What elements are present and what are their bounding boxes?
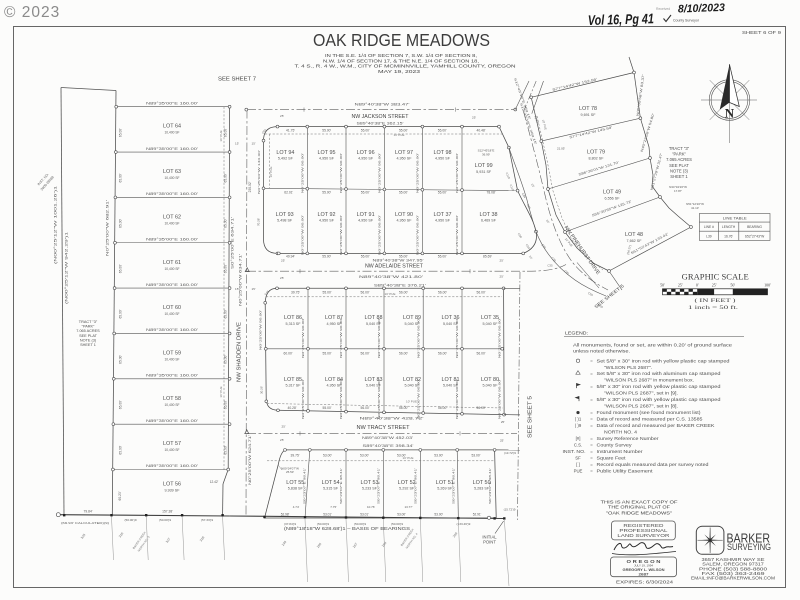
svg-text:LINE #: LINE #	[704, 225, 714, 229]
svg-text:53.00': 53.00'	[397, 453, 406, 457]
svg-text:157.38': 157.38'	[162, 510, 173, 514]
svg-text:NW JACKSON STREET: NW JACKSON STREET	[352, 114, 410, 120]
svg-text:53.01': 53.01'	[360, 512, 369, 516]
svg-text:56.00': 56.00'	[361, 406, 370, 410]
svg-text:4,950 SF: 4,950 SF	[319, 157, 334, 161]
svg-text:OAK RIDGE MEADOWS: OAK RIDGE MEADOWS	[313, 30, 490, 50]
svg-text:Square Feet: Square Feet	[597, 455, 627, 460]
svg-text:7.065 ACRES: 7.065 ACRES	[76, 329, 100, 333]
svg-text:GRAPHIC SCALE: GRAPHIC SCALE	[682, 272, 749, 281]
svg-text:LOT 54: LOT 54	[322, 480, 340, 486]
svg-text:10' PUE: 10' PUE	[219, 130, 223, 141]
svg-text:"WILSON PLS 2687", set in [9].: "WILSON PLS 2687", set in [9].	[604, 391, 678, 396]
svg-text:10' PUE: 10' PUE	[406, 399, 417, 403]
svg-text:56.00': 56.00'	[399, 352, 408, 356]
svg-text:( IN FEET ): ( IN FEET )	[695, 299, 737, 304]
svg-text:L39: L39	[706, 234, 712, 238]
svg-text:N0°25'00"W 90.00': N0°25'00"W 90.00'	[377, 317, 381, 358]
svg-text:THE ORIGINAL PLAT OF: THE ORIGINAL PLAT OF	[608, 505, 670, 510]
svg-text:10,400 SF: 10,400 SF	[165, 131, 180, 135]
svg-text:5/8" x 30" iron rod with yello: 5/8" x 30" iron rod with yellow plastic …	[597, 384, 722, 389]
svg-text:56.00': 56.00'	[399, 290, 408, 294]
svg-text:4,950 SF: 4,950 SF	[435, 157, 450, 161]
svg-text:N89°40'38"W 428.72': N89°40'38"W 428.72'	[360, 417, 425, 421]
svg-text:65.00': 65.00'	[119, 355, 123, 364]
svg-text:7.065 ACRES: 7.065 ACRES	[666, 157, 692, 162]
svg-text:41.13': 41.13'	[691, 206, 700, 210]
svg-text:8/10/2023: 8/10/2023	[678, 2, 725, 16]
svg-text:Public Utility Easement: Public Utility Easement	[597, 468, 654, 473]
svg-text:17.87': 17.87'	[674, 189, 683, 193]
svg-text:N: N	[725, 106, 735, 121]
svg-text:NOTE (3): NOTE (3)	[670, 168, 689, 173]
svg-text:LOT 90: LOT 90	[395, 212, 413, 218]
svg-text:Set 5/8" x 30" iron rod with a: Set 5/8" x 30" iron rod with aluminum ca…	[597, 371, 722, 376]
svg-text:56.00': 56.00'	[477, 290, 486, 294]
svg-text:5,292 SF: 5,292 SF	[399, 487, 414, 491]
svg-text:N89°40'38"W 421.80': N89°40'38"W 421.80'	[359, 275, 424, 279]
svg-text:4.74': 4.74'	[293, 505, 300, 509]
svg-text:70.28': 70.28'	[257, 218, 261, 227]
svg-text:LOT 64: LOT 64	[163, 124, 181, 130]
svg-text:16.76': 16.76'	[724, 234, 733, 238]
svg-text:LOT 62: LOT 62	[163, 214, 181, 220]
svg-text:12.42': 12.42'	[210, 480, 219, 484]
svg-text:65.00': 65.00'	[119, 400, 123, 409]
svg-text:LENGTH: LENGTH	[722, 225, 736, 229]
svg-text:(50.00')9: (50.00')9	[354, 522, 366, 526]
svg-text:LOT 38: LOT 38	[480, 212, 498, 218]
svg-text:N0°25'00"W 90.00': N0°25'00"W 90.00'	[339, 378, 343, 419]
svg-text:N0°25'00"W 90.00': N0°25'00"W 90.00'	[301, 317, 305, 358]
svg-text:10' PUE: 10' PUE	[219, 386, 223, 397]
svg-text:LOT 48: LOT 48	[625, 232, 643, 238]
svg-text:S0°23'07"E 98.41': S0°23'07"E 98.41'	[414, 467, 418, 504]
svg-text:[#]: [#]	[576, 436, 581, 441]
svg-text:100': 100'	[764, 282, 771, 287]
svg-text:SF: SF	[575, 455, 581, 460]
svg-text:5,498 SF: 5,498 SF	[277, 219, 292, 223]
svg-text:SHEET 1: SHEET 1	[80, 343, 96, 347]
svg-text:Record equals measured data pe: Record equals measured data per survey n…	[597, 462, 710, 467]
svg-text:10,400 SF: 10,400 SF	[165, 357, 180, 361]
svg-text:56.00': 56.00'	[361, 352, 370, 356]
svg-text:(50.00')9: (50.00')9	[391, 522, 403, 526]
svg-text:LOT 91: LOT 91	[357, 212, 375, 218]
svg-text:N0°25'00"W 90.00': N0°25'00"W 90.00'	[301, 152, 305, 193]
svg-text:N0°25'00"W 90.00': N0°25'00"W 90.00'	[301, 214, 305, 255]
svg-text:(69.93' CALCULATED)(9): (69.93' CALCULATED)(9)	[61, 521, 109, 525]
svg-text:39.75': 39.75'	[291, 290, 300, 294]
svg-text:S0°23'07"E 98.41': S0°23'07"E 98.41'	[488, 467, 492, 504]
svg-text:"PARK": "PARK"	[82, 325, 95, 329]
svg-text:LOT 61: LOT 61	[163, 260, 181, 266]
svg-text:(N00°25'12"W 1001.26')1: (N00°25'12"W 1001.26')1	[54, 186, 58, 264]
svg-text:N0°25'00"W 90.00': N0°25'00"W 90.00'	[416, 317, 420, 358]
svg-text:5,040 SF: 5,040 SF	[483, 384, 498, 388]
svg-text:© 2023: © 2023	[4, 4, 60, 21]
svg-text:60.00': 60.00'	[284, 352, 293, 356]
svg-text:N0°25'00"W 90.00': N0°25'00"W 90.00'	[339, 214, 343, 255]
svg-text:25': 25'	[501, 420, 505, 424]
svg-text:N0°25'00"W 90.00': N0°25'00"W 90.00'	[301, 378, 305, 419]
svg-text:N89°35'00"E 160.00': N89°35'00"E 160.00'	[146, 283, 199, 287]
svg-text:55.00': 55.00'	[438, 255, 447, 259]
svg-text:9,939 SF: 9,939 SF	[165, 489, 180, 493]
svg-text:25': 25'	[282, 425, 286, 429]
svg-text:10,400 SF: 10,400 SF	[165, 448, 180, 452]
svg-text:"WILSON PLS 2687" in monument: "WILSON PLS 2687" in monument box.	[604, 378, 694, 383]
svg-text:49.94': 49.94'	[286, 255, 295, 259]
svg-text:N0°25'00"W 90.00': N0°25'00"W 90.00'	[455, 214, 459, 255]
svg-text:55.00': 55.00'	[399, 129, 408, 133]
svg-text:LEGEND:: LEGEND:	[565, 331, 588, 336]
svg-text:10' PUE: 10' PUE	[269, 167, 273, 178]
svg-text:JULY 19, 1994: JULY 19, 1994	[634, 564, 654, 568]
svg-text:65.00': 65.00'	[119, 173, 123, 182]
svg-text:55.00': 55.00'	[399, 255, 408, 259]
svg-text:56.00': 56.00'	[361, 290, 370, 294]
svg-text:5,838 SF: 5,838 SF	[288, 487, 303, 491]
svg-text:SURVEYING: SURVEYING	[727, 542, 771, 553]
svg-text:LOT 60: LOT 60	[163, 305, 181, 311]
svg-text:5,269 SF: 5,269 SF	[437, 487, 452, 491]
svg-text:2687: 2687	[639, 572, 649, 576]
svg-text:50': 50'	[660, 282, 665, 287]
svg-text:TRACT "3": TRACT "3"	[669, 146, 690, 151]
svg-text:15': 15'	[252, 142, 256, 146]
svg-text:5,233 SF: 5,233 SF	[362, 487, 377, 491]
svg-text:(50.00')9: (50.00')9	[317, 522, 329, 526]
svg-text:S89°40'38"E 398.34': S89°40'38"E 398.34'	[363, 444, 415, 448]
svg-text:7.75': 7.75'	[330, 505, 337, 509]
svg-text:TRACT "3": TRACT "3"	[79, 320, 98, 324]
svg-text:55.00': 55.00'	[323, 352, 332, 356]
svg-text:55.00': 55.00'	[361, 129, 370, 133]
svg-text:7,662 SF: 7,662 SF	[627, 239, 642, 243]
svg-text:1 inch = 50 ft.: 1 inch = 50 ft.	[688, 304, 738, 311]
svg-text:S0°23'07"E 98.41': S0°23'07"E 98.41'	[377, 467, 381, 504]
svg-text:(13.72')9: (13.72')9	[504, 451, 516, 455]
svg-text:6,556 SF: 6,556 SF	[605, 197, 620, 201]
svg-text:13.77': 13.77'	[404, 505, 413, 509]
svg-text:N0°25'00"W 90.00': N0°25'00"W 90.00'	[259, 309, 263, 350]
svg-text:LOT 99: LOT 99	[475, 163, 493, 169]
svg-text:56.00': 56.00'	[438, 352, 447, 356]
svg-text:10.76': 10.76'	[367, 505, 376, 509]
svg-text:25': 25'	[500, 259, 504, 263]
svg-text:N89°40'38"W 452.03': N89°40'38"W 452.03'	[362, 436, 414, 440]
svg-text:(50.00')9: (50.00')9	[124, 518, 136, 522]
svg-text:65.00': 65.00'	[119, 219, 123, 228]
svg-text:NORTH NO. 4: NORTH NO. 4	[604, 429, 638, 434]
svg-text:O R E G O N: O R E G O N	[627, 559, 661, 564]
svg-text:Data of record and measured pe: Data of record and measured per BAKER CR…	[597, 423, 715, 428]
svg-text:5,492 SF: 5,492 SF	[278, 157, 293, 161]
svg-text:53.00': 53.00'	[434, 453, 443, 457]
svg-text:55.00': 55.00'	[322, 191, 331, 195]
svg-text:LOT 58: LOT 58	[163, 396, 181, 402]
svg-text:SEE PLAT: SEE PLAT	[79, 334, 98, 338]
svg-text:C.S.: C.S.	[574, 442, 582, 447]
svg-text:County Survey: County Survey	[597, 442, 633, 447]
svg-text:62.01': 62.01'	[284, 191, 293, 195]
svg-text:230.02': 230.02'	[248, 181, 252, 192]
svg-text:N89°35'00"E 160.00': N89°35'00"E 160.00'	[146, 328, 199, 332]
svg-text:N0°25'00"W 90.00': N0°25'00"W 90.00'	[339, 152, 343, 193]
svg-text:56.00': 56.00'	[399, 406, 408, 410]
svg-text:EXPIRES: 6/30/2024: EXPIRES: 6/30/2024	[616, 579, 674, 584]
svg-text:LOT 97: LOT 97	[395, 150, 413, 156]
svg-text:79.84': 79.84'	[84, 509, 93, 513]
svg-text:N89°35'00"E 160.00': N89°35'00"E 160.00'	[146, 374, 199, 378]
svg-text:LOT 96: LOT 96	[357, 150, 375, 156]
svg-text:NOTE (3): NOTE (3)	[80, 338, 97, 342]
svg-text:LOT 98: LOT 98	[434, 150, 452, 156]
svg-text:N89°35'00"E 160.00': N89°35'00"E 160.00'	[146, 237, 199, 241]
svg-text:55.00': 55.00'	[438, 129, 447, 133]
svg-text:5,317 SF: 5,317 SF	[286, 384, 301, 388]
svg-text:55.00': 55.00'	[438, 191, 447, 195]
svg-text:SHEET 1: SHEET 1	[670, 174, 688, 179]
svg-text:"WILSON PLS 2687", set in [8].: "WILSON PLS 2687", set in [8].	[604, 404, 678, 409]
svg-text:EMAIL:INFO@BARKERWILSON.COM: EMAIL:INFO@BARKERWILSON.COM	[691, 576, 775, 581]
svg-text:56.00': 56.00'	[438, 290, 447, 294]
svg-text:SHEET 6 OF 9: SHEET 6 OF 9	[742, 30, 782, 35]
svg-text:BEARING: BEARING	[747, 225, 762, 229]
svg-text:S89°40'38"E 376.21': S89°40'38"E 376.21'	[374, 284, 427, 288]
svg-text:LOT 92: LOT 92	[318, 212, 336, 218]
svg-text:Received: Received	[656, 7, 670, 11]
svg-text:N0°25'00"W 90.00': N0°25'00"W 90.00'	[378, 214, 382, 255]
svg-text:N0°25'00"W 90.00': N0°25'00"W 90.00'	[455, 317, 459, 358]
svg-text:0': 0'	[696, 282, 699, 287]
svg-text:15': 15'	[235, 287, 239, 291]
svg-text:25': 25'	[472, 116, 476, 120]
svg-text:53.00': 53.00'	[434, 512, 443, 516]
svg-text:53.00': 53.00'	[360, 453, 369, 457]
svg-text:25': 25'	[281, 259, 285, 263]
svg-text:65.00': 65.00'	[119, 309, 123, 318]
svg-text:N0°25'00"W 90.00': N0°25'00"W 90.00'	[416, 214, 420, 255]
svg-text:S52°27'43"W: S52°27'43"W	[745, 234, 765, 238]
svg-text:N0°25'00"W 90.00': N0°25'00"W 90.00'	[455, 378, 459, 419]
svg-text:(37.84')9: (37.84')9	[284, 522, 296, 526]
svg-text:52.91': 52.91'	[473, 512, 482, 516]
svg-text:15': 15'	[252, 287, 256, 291]
svg-text:unless noted otherwise.: unless noted otherwise.	[573, 348, 630, 353]
svg-text:55.00': 55.00'	[399, 191, 408, 195]
svg-text:65.00': 65.00'	[119, 128, 123, 137]
svg-text:10,400 SF: 10,400 SF	[165, 176, 180, 180]
svg-text:(15.72')9: (15.72')9	[504, 508, 516, 512]
svg-text:9,691 SF: 9,691 SF	[581, 113, 596, 117]
svg-text:( )9: ( )9	[575, 423, 582, 428]
svg-text:SEE SHEET 5: SEE SHEET 5	[528, 396, 534, 438]
svg-text:S89°40'38"E 362.15': S89°40'38"E 362.15'	[357, 121, 405, 125]
svg-text:65.00': 65.00'	[223, 128, 227, 137]
svg-text:N0°25'00"W 682.91': N0°25'00"W 682.91'	[106, 199, 110, 256]
svg-text:5,313 SF: 5,313 SF	[286, 322, 301, 326]
svg-text:SEE PLAT: SEE PLAT	[669, 163, 689, 168]
svg-text:4,950 SF: 4,950 SF	[397, 219, 412, 223]
svg-text:25': 25'	[500, 439, 504, 443]
svg-text:Found monument (see found monu: Found monument (see found monument list)	[597, 410, 702, 415]
svg-text:65.00': 65.00'	[119, 445, 123, 454]
svg-text:N0°25'00"W 624.71': N0°25'00"W 624.71'	[248, 434, 252, 485]
svg-text:S0°23'07"E 98.41': S0°23'07"E 98.41'	[339, 467, 343, 504]
svg-text:N89°35'00"E 160.00': N89°35'00"E 160.00'	[146, 147, 199, 151]
svg-text:"PARK": "PARK"	[672, 152, 687, 157]
svg-text:N0°25'00"W 90.00': N0°25'00"W 90.00'	[416, 152, 420, 193]
svg-text:LOT 79: LOT 79	[587, 150, 605, 156]
svg-text:N89°35'00"E 160.00': N89°35'00"E 160.00'	[146, 419, 199, 423]
svg-text:N89°35'00"E 160.00': N89°35'00"E 160.00'	[146, 192, 199, 196]
svg-text:LOT 56: LOT 56	[163, 482, 181, 488]
svg-text:SEE SHEET 7: SEE SHEET 7	[218, 77, 256, 83]
svg-text:65.00': 65.00'	[119, 264, 123, 273]
svg-text:78.08': 78.08'	[487, 191, 496, 195]
svg-text:39.75': 39.75'	[291, 453, 300, 457]
svg-text:N0°25'00"W 90.00': N0°25'00"W 90.00'	[455, 152, 459, 193]
svg-text:25.53': 25.53'	[286, 470, 295, 474]
svg-text:POINT: POINT	[483, 539, 496, 544]
svg-text:85.69': 85.69'	[483, 255, 492, 259]
svg-text:LOT 57: LOT 57	[163, 441, 181, 447]
svg-text:52.98': 52.98'	[281, 512, 290, 516]
svg-text:S0°25'00"E 634.71': S0°25'00"E 634.71'	[231, 216, 235, 269]
svg-text:55.00': 55.00'	[361, 255, 370, 259]
svg-text:5,931 SF: 5,931 SF	[476, 170, 491, 174]
svg-text:N0°25'00"W 90.00': N0°25'00"W 90.00'	[339, 317, 343, 358]
svg-text:10' PUE: 10' PUE	[385, 292, 396, 296]
svg-text:LOT 37: LOT 37	[434, 212, 452, 218]
svg-text:GREGORY L. WILSON: GREGORY L. WILSON	[623, 568, 665, 572]
svg-text:10,400 SF: 10,400 SF	[165, 312, 180, 316]
svg-text:LOT 85: LOT 85	[284, 377, 302, 383]
svg-text:4,950 SF: 4,950 SF	[358, 157, 373, 161]
svg-text:5,315 SF: 5,315 SF	[323, 487, 338, 491]
svg-text:N.W. 1/4 OF SECTION 17, & THE: N.W. 1/4 OF SECTION 17, & THE N.E. 1/4 O…	[323, 58, 479, 63]
svg-text:County Surveyor: County Surveyor	[673, 19, 700, 23]
svg-text:55.00': 55.00'	[322, 129, 331, 133]
svg-text:Survey Reference Number: Survey Reference Number	[597, 436, 660, 441]
svg-text:LOT 93: LOT 93	[276, 212, 294, 218]
svg-text:55.00': 55.00'	[323, 290, 332, 294]
svg-text:55.00': 55.00'	[361, 191, 370, 195]
svg-text:LOT 95: LOT 95	[318, 150, 336, 156]
svg-text:40.28': 40.28'	[288, 406, 297, 410]
svg-text:N89°40'38"W 383.47': N89°40'38"W 383.47'	[355, 103, 411, 107]
svg-text:15': 15'	[235, 142, 239, 146]
svg-text:10,400 SF: 10,400 SF	[165, 403, 180, 407]
svg-text:N0°25'00"W 90.00': N0°25'00"W 90.00'	[378, 152, 382, 193]
svg-text:Vol 16, Pg 41: Vol 16, Pg 41	[588, 10, 655, 28]
svg-text:LOT 49: LOT 49	[603, 190, 621, 196]
svg-text:8,802 SF: 8,802 SF	[589, 157, 604, 161]
svg-text:( )1: ( )1	[575, 417, 582, 422]
svg-text:N0°25'00"W 90.00': N0°25'00"W 90.00'	[497, 317, 501, 358]
svg-text:T. 4 S., R. 4 W., W.M., CITY O: T. 4 S., R. 4 W., W.M., CITY OF MCMINNVI…	[295, 64, 516, 69]
svg-text:53.00': 53.00'	[397, 512, 406, 516]
svg-text:56.00': 56.00'	[477, 352, 486, 356]
svg-text:25': 25'	[500, 275, 504, 279]
svg-text:N89°35'00"E 160.00': N89°35'00"E 160.00'	[146, 101, 199, 105]
svg-text:NW TRACY STREET: NW TRACY STREET	[357, 425, 411, 431]
svg-text:65.00': 65.00'	[223, 173, 227, 182]
svg-text:NW ADELAIDE STREET: NW ADELAIDE STREET	[365, 264, 424, 270]
svg-text:S0°23'07"E 98.41': S0°23'07"E 98.41'	[303, 467, 307, 504]
svg-text:56.00': 56.00'	[477, 406, 486, 410]
svg-text:53.01': 53.01'	[323, 512, 332, 516]
svg-text:Data of record and measured pe: Data of record and measured per C.S. 135…	[597, 417, 704, 422]
svg-text:10,400 SF: 10,400 SF	[165, 267, 180, 271]
svg-text:(N89°18'18"W 628.68')1 – BAS: (N89°18'18"W 628.68')1 – BASIS OF BEARIN…	[284, 526, 410, 531]
svg-text:40.48': 40.48'	[477, 129, 486, 133]
svg-text:55.00': 55.00'	[323, 406, 332, 410]
svg-text:PUE: PUE	[574, 468, 583, 473]
svg-text:25': 25'	[712, 282, 717, 287]
svg-text:(57.33')9: (57.33')9	[201, 518, 213, 522]
svg-text:LOT 63: LOT 63	[163, 169, 181, 175]
svg-text:N0°25'00"W 140.00': N0°25'00"W 140.00'	[257, 149, 261, 194]
svg-text:INST. NO.: INST. NO.	[563, 449, 586, 454]
svg-text:25': 25'	[678, 282, 683, 287]
svg-text:53.00': 53.00'	[471, 453, 480, 457]
svg-text:Instrument Number: Instrument Number	[597, 449, 644, 454]
svg-text:"WILSON PLS 2687".: "WILSON PLS 2687".	[604, 365, 652, 370]
svg-text:"OAK RIDGE MEADOWS": "OAK RIDGE MEADOWS"	[606, 510, 673, 515]
svg-text:60.23': 60.23'	[118, 491, 122, 500]
svg-text:4,950 SF: 4,950 SF	[358, 219, 373, 223]
svg-text:N89°40'38"W 347.95': N89°40'38"W 347.95'	[373, 258, 425, 262]
svg-text:Set 5/8" x 30" iron rod with y: Set 5/8" x 30" iron rod with yellow plas…	[597, 358, 731, 363]
svg-text:10,400 SF: 10,400 SF	[165, 221, 180, 225]
svg-text:N0°25'00"W 90.00': N0°25'00"W 90.00'	[377, 378, 381, 419]
svg-text:25': 25'	[280, 438, 284, 442]
svg-text:50': 50'	[730, 282, 735, 287]
svg-text:5,040 SF: 5,040 SF	[483, 322, 498, 326]
svg-text:LOT 86: LOT 86	[284, 315, 302, 321]
svg-text:N0°25'00"W 634.71': N0°25'00"W 634.71'	[238, 253, 242, 306]
svg-text:(50.00')9: (50.00')9	[159, 518, 171, 522]
svg-text:53.00': 53.00'	[323, 453, 332, 457]
svg-text:4,950 SF: 4,950 SF	[319, 219, 334, 223]
svg-text:30.26': 30.26'	[259, 386, 263, 395]
svg-text:S0°23'07"E 98.41': S0°23'07"E 98.41'	[452, 467, 456, 504]
svg-text:N0°25'00"W 90.00': N0°25'00"W 90.00'	[416, 378, 420, 419]
svg-text:[ ]: [ ]	[576, 462, 580, 467]
svg-text:LOT 78: LOT 78	[579, 106, 597, 112]
svg-text:36.99': 36.99'	[482, 152, 491, 156]
svg-text:25': 25'	[280, 276, 284, 280]
svg-text:4,950 SF: 4,950 SF	[435, 219, 450, 223]
svg-text:LINE TABLE: LINE TABLE	[723, 217, 748, 221]
svg-text:21.05': 21.05'	[557, 147, 566, 151]
svg-text:MAY 19, 2023: MAY 19, 2023	[378, 69, 421, 74]
svg-text:THIS IS AN EXACT COPY OF: THIS IS AN EXACT COPY OF	[601, 499, 678, 504]
svg-text:(N00°25'12"W 942.29')1: (N00°25'12"W 942.29')1	[65, 232, 69, 304]
svg-text:5/8" x 30" iron rod with yello: 5/8" x 30" iron rod with yellow plastic …	[597, 397, 722, 402]
svg-text:N0°25'00"W 90.00': N0°25'00"W 90.00'	[497, 378, 501, 419]
svg-text:N89°35'00"E 160.00': N89°35'00"E 160.00'	[146, 464, 199, 468]
svg-text:10' PUE: 10' PUE	[394, 133, 405, 137]
svg-text:LOT 94: LOT 94	[276, 150, 294, 156]
svg-text:NW SHADDEN DRIVE: NW SHADDEN DRIVE	[237, 321, 243, 382]
svg-text:56.00': 56.00'	[438, 406, 447, 410]
svg-text:LAND SURVEYOR: LAND SURVEYOR	[617, 533, 669, 538]
svg-text:55.00': 55.00'	[322, 255, 331, 259]
